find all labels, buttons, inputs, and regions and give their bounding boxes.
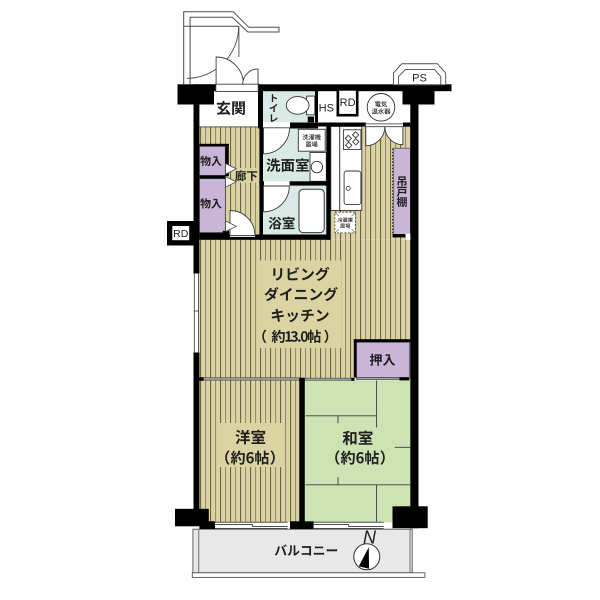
svg-text:RD: RD: [340, 97, 356, 109]
svg-text:HS: HS: [319, 103, 334, 115]
svg-text:N: N: [363, 528, 377, 548]
svg-text:RD: RD: [173, 228, 189, 240]
svg-text:PS: PS: [412, 73, 427, 85]
